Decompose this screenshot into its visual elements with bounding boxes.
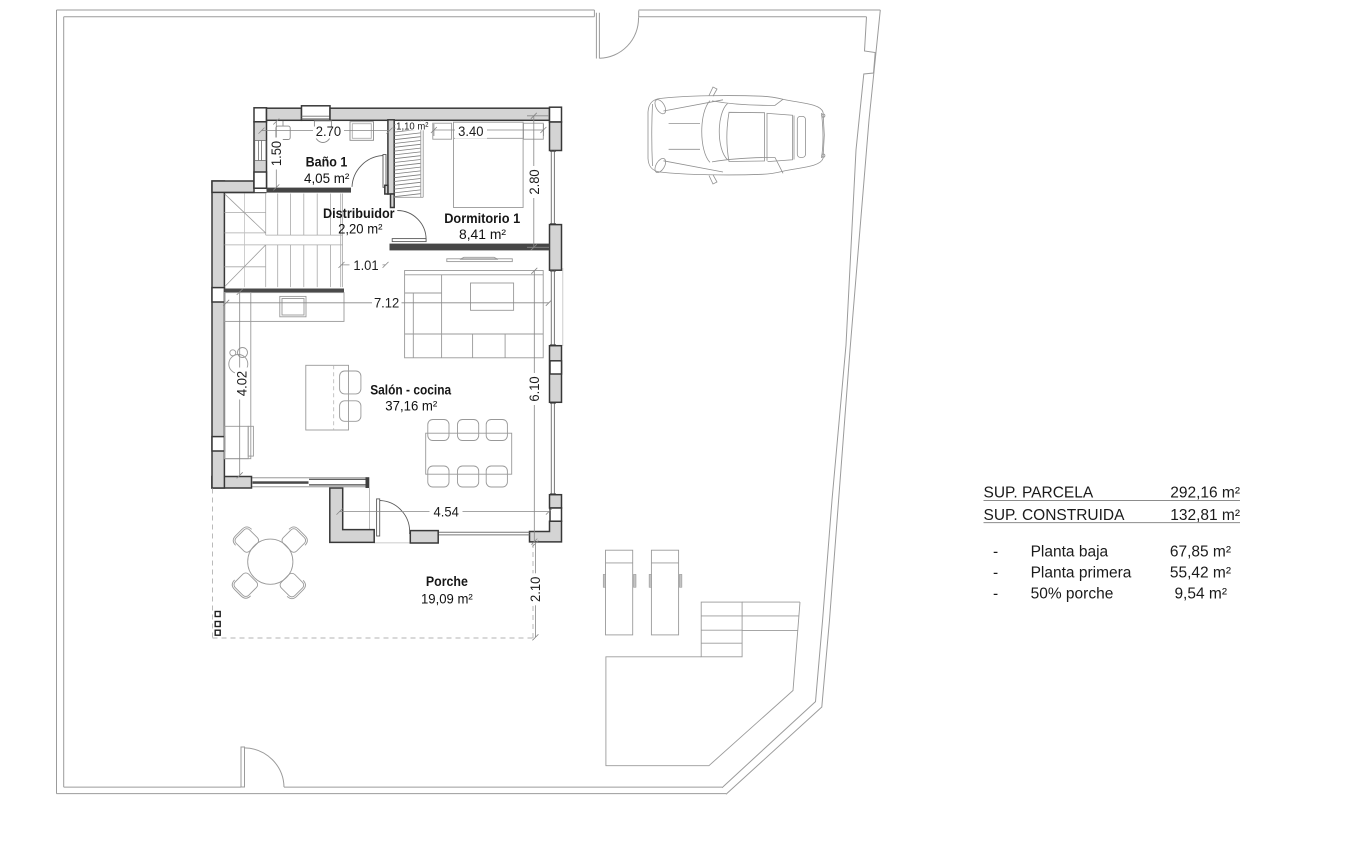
svg-text:-: - [993, 586, 998, 603]
svg-text:SUP. CONSTRUIDA: SUP. CONSTRUIDA [984, 507, 1126, 524]
svg-text:SUP. PARCELA: SUP. PARCELA [984, 485, 1094, 502]
svg-text:2,20 m²: 2,20 m² [338, 221, 383, 237]
svg-text:-: - [993, 543, 998, 560]
svg-text:3.40: 3.40 [458, 123, 483, 139]
svg-text:-: - [993, 565, 998, 582]
svg-text:1,10 m²: 1,10 m² [396, 121, 429, 132]
svg-text:292,16 m²: 292,16 m² [1170, 485, 1240, 502]
svg-text:2.70: 2.70 [316, 123, 341, 139]
svg-text:Planta baja: Planta baja [1031, 543, 1109, 560]
svg-text:Planta primera: Planta primera [1031, 565, 1132, 582]
svg-text:132,81 m²: 132,81 m² [1170, 507, 1240, 524]
svg-text:8,41 m²: 8,41 m² [459, 226, 506, 242]
svg-text:50% porche: 50% porche [1031, 586, 1114, 603]
svg-text:4.54: 4.54 [434, 504, 459, 520]
svg-text:1.01: 1.01 [353, 257, 378, 273]
svg-text:Distribuidor: Distribuidor [323, 206, 395, 221]
svg-text:19,09 m²: 19,09 m² [421, 591, 473, 607]
svg-text:2.10: 2.10 [527, 576, 543, 601]
svg-text:6.10: 6.10 [526, 376, 542, 401]
svg-text:9,54 m²: 9,54 m² [1174, 586, 1227, 603]
svg-text:Porche: Porche [426, 574, 468, 589]
svg-text:2.80: 2.80 [526, 169, 542, 194]
svg-text:55,42 m²: 55,42 m² [1170, 565, 1231, 582]
svg-text:37,16 m²: 37,16 m² [385, 398, 437, 414]
svg-text:1.50: 1.50 [268, 141, 284, 166]
svg-text:4,05 m²: 4,05 m² [304, 170, 350, 186]
svg-text:67,85 m²: 67,85 m² [1170, 543, 1231, 560]
svg-text:7.12: 7.12 [374, 294, 399, 310]
svg-text:Baño 1: Baño 1 [306, 154, 348, 169]
svg-text:4.02: 4.02 [233, 371, 249, 396]
svg-text:Dormitorio 1: Dormitorio 1 [444, 211, 520, 226]
svg-text:Salón - cocina: Salón - cocina [370, 383, 451, 398]
